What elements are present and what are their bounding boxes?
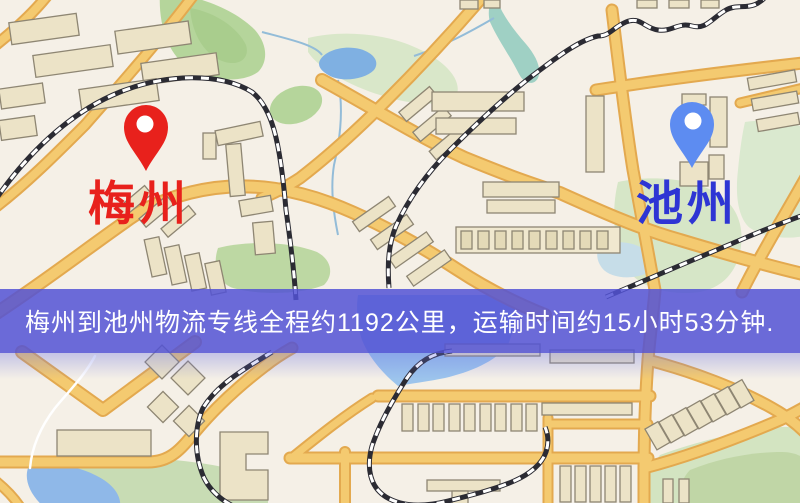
river bbox=[489, 0, 539, 83]
destination-pin bbox=[670, 102, 714, 168]
origin-city-label: 梅州 bbox=[88, 179, 190, 231]
origin-pin bbox=[124, 105, 168, 171]
destination-pin-body bbox=[670, 102, 714, 168]
map-canvas: 梅州 池州 bbox=[0, 0, 800, 503]
origin-pin-body bbox=[124, 105, 168, 171]
origin-pin-hole bbox=[137, 116, 154, 133]
destination-city-label: 池州 bbox=[636, 179, 738, 231]
route-info-text: 梅州到池州物流专线全程约1192公里，运输时间约15小时53分钟. bbox=[25, 303, 774, 339]
destination-pin-hole bbox=[685, 113, 702, 130]
map-viewport: 梅州 池州 梅州到池州物流专线全程约1192公里，运输时间约15小时53分钟. bbox=[0, 0, 800, 503]
route-info-banner: 梅州到池州物流专线全程约1192公里，运输时间约15小时53分钟. bbox=[0, 289, 800, 353]
